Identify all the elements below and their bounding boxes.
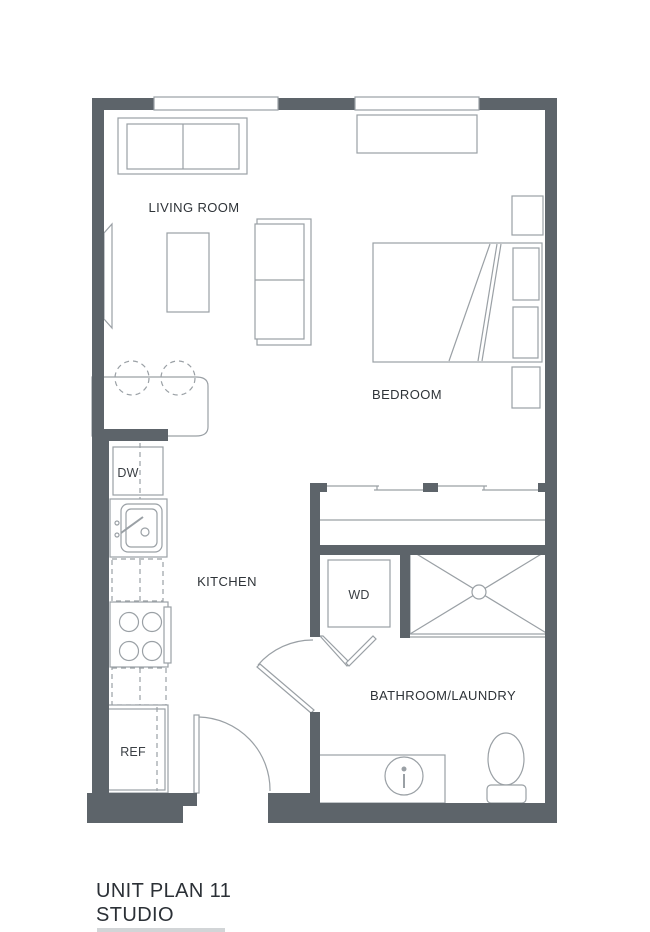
window <box>154 97 278 110</box>
pillow <box>513 307 538 358</box>
dishwasher-label: DW <box>117 466 138 480</box>
floor-plan-page: LIVING ROOM BEDROOM KITCHEN BATHROOM/LAU… <box>0 0 650 932</box>
sliding-door-post <box>315 483 327 492</box>
wall-right <box>545 98 557 823</box>
bedroom-label: BEDROOM <box>372 387 442 402</box>
unit-subtitle: STUDIO <box>96 904 174 926</box>
coffee-table <box>167 233 209 312</box>
cabinet-dashed <box>112 559 163 601</box>
wall-bath-interior <box>310 545 557 555</box>
sliding-door-post <box>538 483 552 492</box>
wall-bath-left-lower <box>310 712 320 807</box>
washer-dryer-label: WD <box>348 588 369 602</box>
kitchen-label: KITCHEN <box>197 574 257 589</box>
wall-bath-left-upper <box>310 483 320 637</box>
wall-top <box>278 98 355 110</box>
bathroom-door-leaf <box>257 664 314 713</box>
wall-bottom-bath <box>312 803 557 823</box>
loveseat-seat <box>255 224 304 339</box>
burner <box>143 613 162 632</box>
unit-title: UNIT PLAN 11 <box>96 880 231 902</box>
title-block: UNIT PLAN 11 STUDIO <box>96 880 231 932</box>
cropped-text-remnant <box>97 928 225 932</box>
tv-icon <box>104 224 112 328</box>
entry-door-leaf <box>194 715 199 793</box>
refrigerator-label: REF <box>120 745 146 759</box>
bifold-door-leaf <box>346 636 376 666</box>
sink-drain <box>141 528 149 536</box>
faucet-knob <box>115 521 119 525</box>
bar-counter <box>92 377 208 436</box>
toilet-tank <box>487 785 526 803</box>
wall-entry-jamb <box>183 793 197 806</box>
toilet-bowl <box>488 733 524 785</box>
wall-left-upper <box>92 98 104 433</box>
window <box>355 97 479 110</box>
wall-shower-divider <box>400 545 410 638</box>
pillow <box>513 248 539 300</box>
burner <box>143 642 162 661</box>
cabinet-dashed <box>112 668 166 705</box>
entry-door-swing-arc <box>199 717 270 791</box>
bathroom-door-swing-arc <box>258 640 313 665</box>
nightstand <box>512 367 540 408</box>
wall-bottom-left <box>87 793 183 823</box>
faucet-knob <box>115 533 119 537</box>
burner <box>120 613 139 632</box>
vanity-counter <box>318 755 445 803</box>
sliding-door-post <box>423 483 438 492</box>
burner <box>120 642 139 661</box>
living-room-label: LIVING ROOM <box>148 200 239 215</box>
bifold-door-leaf <box>320 636 350 666</box>
oven-handle <box>164 607 171 663</box>
bathroom-laundry-label: BATHROOM/LAUNDRY <box>370 688 516 703</box>
wall-left-lower <box>92 433 109 795</box>
vanity-faucet <box>402 767 407 772</box>
floor-plan-drawing: LIVING ROOM BEDROOM KITCHEN BATHROOM/LAU… <box>0 0 650 932</box>
nightstand <box>512 196 543 235</box>
sink-basin-inner <box>126 509 157 547</box>
shower-drain <box>472 585 486 599</box>
dresser <box>357 115 477 153</box>
